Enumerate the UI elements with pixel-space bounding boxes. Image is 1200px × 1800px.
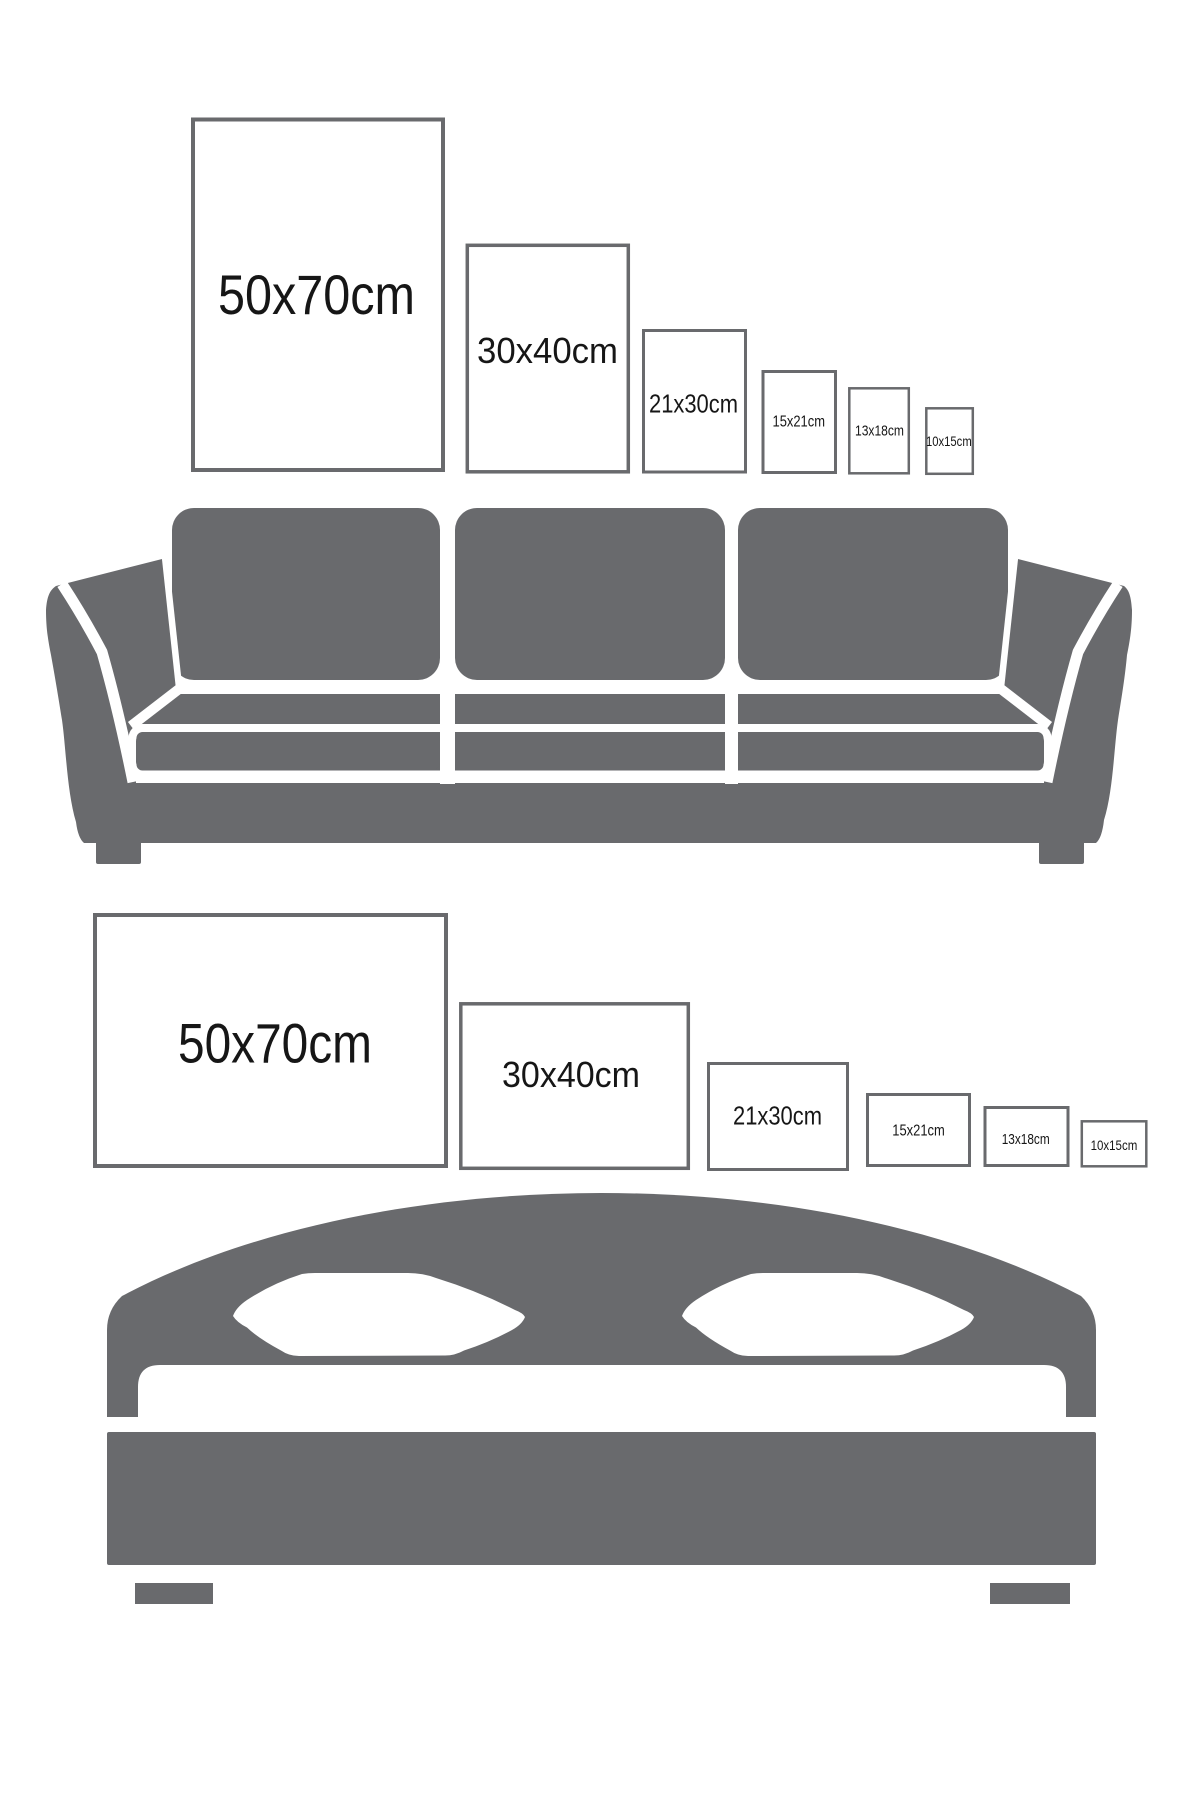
svg-text:50x70cm: 50x70cm (178, 1012, 372, 1075)
svg-text:10x15cm: 10x15cm (926, 434, 972, 449)
svg-text:30x40cm: 30x40cm (477, 330, 618, 371)
svg-text:13x18cm: 13x18cm (855, 423, 904, 440)
svg-text:21x30cm: 21x30cm (733, 1101, 822, 1131)
svg-text:21x30cm: 21x30cm (649, 389, 738, 419)
svg-text:13x18cm: 13x18cm (1002, 1131, 1050, 1148)
svg-text:15x21cm: 15x21cm (773, 414, 826, 431)
svg-text:15x21cm: 15x21cm (892, 1123, 945, 1140)
svg-text:30x40cm: 30x40cm (502, 1054, 640, 1095)
svg-text:10x15cm: 10x15cm (1091, 1138, 1138, 1153)
svg-text:50x70cm: 50x70cm (218, 263, 415, 326)
